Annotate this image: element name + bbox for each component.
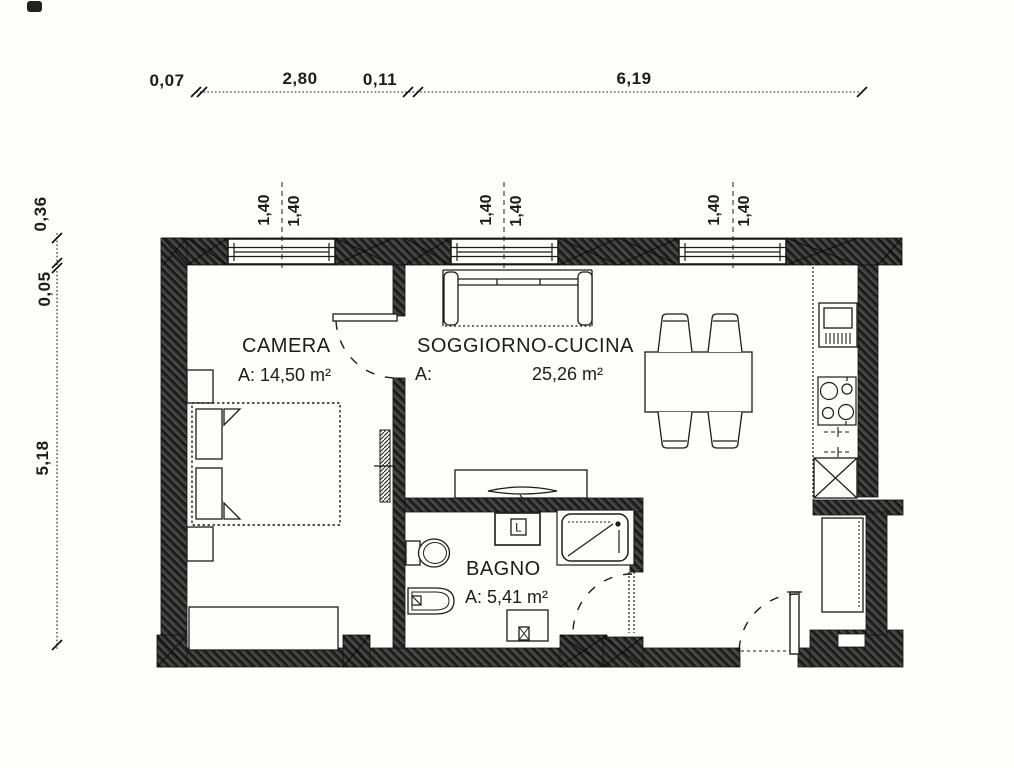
bagno-area: A: 5,41 m²: [465, 587, 548, 607]
windows: [228, 182, 786, 272]
bagno-door: [573, 572, 634, 633]
floor-plan-page: L 0,07 2,80 0,11 6,19: [0, 0, 1014, 768]
dresser: [189, 607, 338, 650]
dim-left-2: 0,05: [35, 271, 54, 306]
dim-top-4: 6,19: [616, 69, 651, 88]
window-2-dim-b: 1,40: [508, 195, 525, 226]
window-2-dim-a: 1,40: [478, 194, 495, 225]
right-wall-stub: [813, 500, 903, 515]
entrance-door-leaf: [790, 592, 799, 654]
bottom-wall: [158, 648, 740, 667]
left-wall: [161, 238, 187, 667]
floor-plan-drawing: L 0,07 2,80 0,11 6,19: [0, 0, 1014, 768]
shower: [557, 510, 634, 565]
kitchen-sink-divider: [824, 427, 851, 457]
oven: [819, 303, 857, 347]
window-3-dim-a: 1,40: [706, 194, 723, 225]
shower-head: [615, 521, 620, 526]
soggiorno-area-prefix: A:: [415, 364, 432, 384]
chair: [658, 314, 692, 352]
window-1-dim-a: 1,40: [256, 194, 273, 225]
dimension-labels: 0,07 2,80 0,11 6,19 0,36 0,05 5,18: [31, 69, 652, 476]
chair: [708, 314, 742, 352]
window-2: [451, 182, 558, 272]
chair: [708, 412, 742, 448]
bidet: [408, 588, 454, 614]
appliance-box: [814, 458, 857, 498]
right-wall-upper: [858, 265, 878, 497]
dim-top-3: 0,11: [363, 70, 397, 89]
window-1-dim-b: 1,40: [286, 195, 303, 226]
window-1: [228, 182, 335, 272]
kitchen: [813, 267, 857, 500]
camera-door: [333, 314, 397, 378]
camera-name: CAMERA: [242, 335, 331, 357]
soggiorno-name: SOGGIORNO-CUCINA: [417, 335, 634, 357]
partition-wall-lower: [393, 378, 405, 648]
washing-machine: L: [495, 513, 540, 545]
pillow-2: [196, 468, 222, 519]
partition-wall-upper: [393, 265, 405, 316]
camera-area: A: 14,50 m²: [238, 365, 331, 385]
dim-top-1: 0,07: [149, 71, 184, 90]
top-dimension-line: [191, 87, 867, 97]
dining-table: [645, 352, 752, 412]
wall-niche: [838, 634, 865, 647]
soggiorno-area: 25,26 m²: [532, 364, 603, 384]
pillow-1: [196, 409, 222, 459]
sofa: [443, 270, 592, 326]
nightstand-1: [187, 370, 213, 403]
dim-top-2: 2,80: [282, 69, 317, 88]
bed-sheet-fold-top: [224, 409, 240, 425]
chair: [658, 412, 692, 448]
camera-door-leaf: [333, 314, 397, 321]
window-3: [679, 182, 786, 272]
bathroom-sink: [507, 610, 548, 641]
right-wall-lower: [866, 512, 887, 635]
washing-machine-label: L: [515, 521, 522, 535]
bagno-door-swing-arc: [573, 574, 632, 633]
entrance-door-swing-arc: [739, 594, 798, 653]
wardrobe: [822, 518, 863, 612]
cooktop: [818, 377, 856, 425]
bed-sheet-fold-bottom: [224, 503, 240, 519]
window-3-dim-b: 1,40: [736, 195, 753, 226]
bagno-name: BAGNO: [466, 558, 541, 580]
dim-left-3: 5,18: [33, 440, 52, 475]
camera-door-swing-arc: [336, 321, 396, 378]
scan-artifact: [27, 1, 42, 12]
entrance-door: [739, 592, 802, 654]
tv-cabinet: [455, 470, 587, 501]
nightstand-2: [187, 527, 213, 561]
dim-left-1: 0,36: [31, 196, 50, 231]
toilet: [406, 539, 450, 567]
